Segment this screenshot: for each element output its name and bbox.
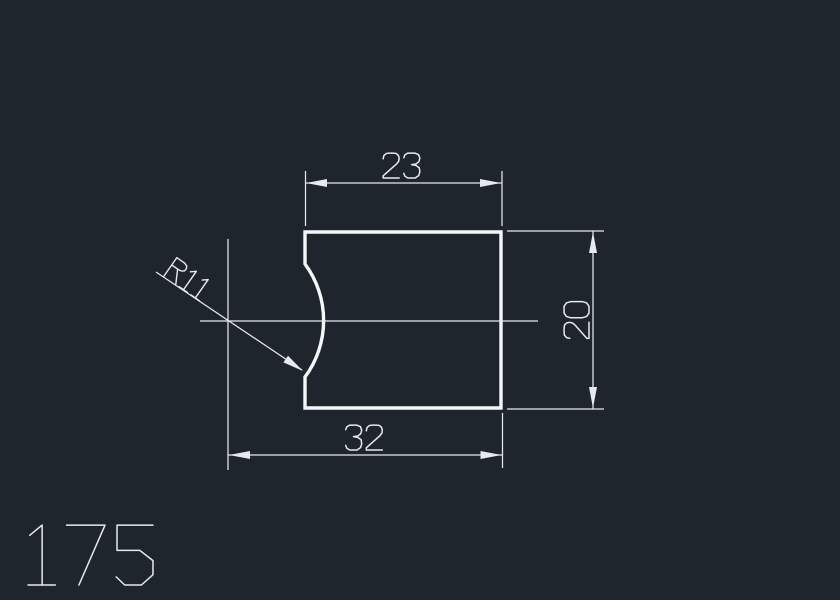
drawing-svg (0, 0, 840, 600)
cad-viewport[interactable] (0, 0, 840, 600)
drawing-background (0, 0, 840, 600)
